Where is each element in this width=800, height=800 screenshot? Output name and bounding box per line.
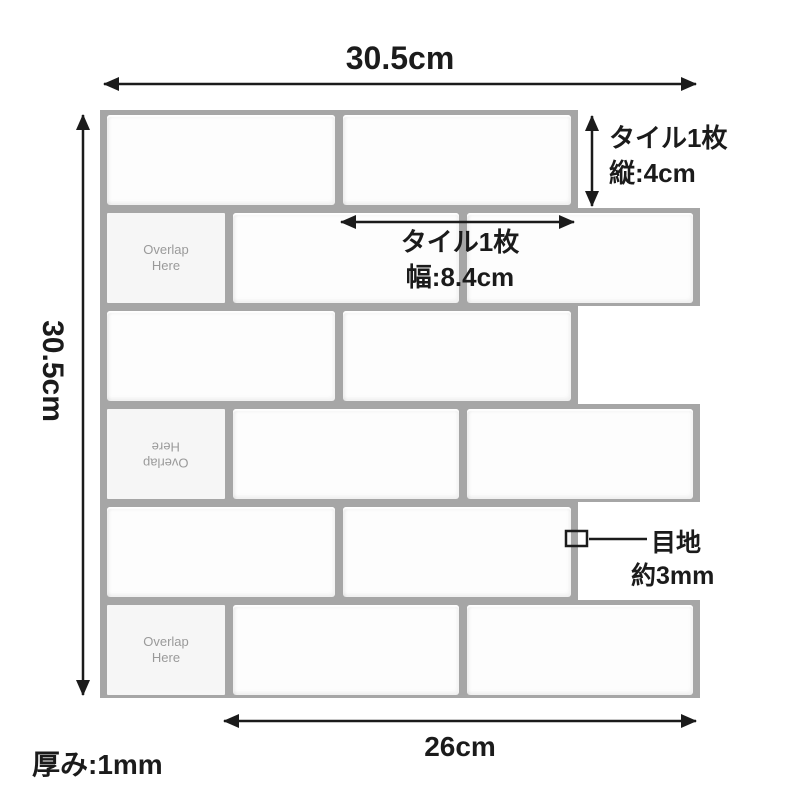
overlap-label-line1: Overlap xyxy=(143,454,189,470)
overlap-tile: OverlapHere xyxy=(107,409,225,499)
tile-row: OverlapHere xyxy=(100,404,700,502)
tile xyxy=(233,409,459,499)
tile xyxy=(343,115,571,205)
tile-row xyxy=(100,306,578,404)
sheet-width-label: 30.5cm xyxy=(310,40,490,77)
overlap-label-line1: Overlap xyxy=(143,242,189,258)
overlap-tile: OverlapHere xyxy=(107,213,225,303)
overlap-tile-label: OverlapHere xyxy=(143,438,189,471)
tile-row xyxy=(100,502,578,600)
tile-width-label-line1: タイル1枚 xyxy=(338,225,582,260)
overlap-tile-label: OverlapHere xyxy=(143,634,189,667)
tile-width-label: タイル1枚 幅:8.4cm xyxy=(338,225,582,295)
tile xyxy=(467,409,693,499)
overlap-label-line2: Here xyxy=(143,258,189,274)
tile-row: OverlapHere xyxy=(100,600,700,698)
joint-label: 目地 xyxy=(651,523,701,559)
tile xyxy=(107,507,335,597)
diagram-stage: OverlapHereOverlapHereOverlapHere 30.5cm… xyxy=(0,0,800,800)
overlap-tile-label: OverlapHere xyxy=(143,242,189,275)
partial-width-label: 26cm xyxy=(400,731,520,763)
tile-row xyxy=(100,110,578,208)
overlap-label-line2: Here xyxy=(143,650,189,666)
overlap-tile: OverlapHere xyxy=(107,605,225,695)
overlap-label-line1: Overlap xyxy=(143,634,189,650)
tile xyxy=(343,311,571,401)
tile-height-label-line1: タイル1枚 xyxy=(609,121,727,156)
tile xyxy=(107,311,335,401)
tile-sheet: OverlapHereOverlapHereOverlapHere xyxy=(100,110,700,698)
sheet-height-label: 30.5cm xyxy=(33,281,71,461)
overlap-label-line2: Here xyxy=(143,438,189,454)
joint-size-label: 約3mm xyxy=(631,556,714,592)
tile xyxy=(343,507,571,597)
tile-height-label: タイル1枚 縦:4cm xyxy=(609,121,727,191)
tile-height-label-line2: 縦:4cm xyxy=(609,156,727,191)
tile xyxy=(467,605,693,695)
tile xyxy=(107,115,335,205)
thickness-label: 厚み:1mm xyxy=(32,743,163,783)
tile xyxy=(233,605,459,695)
tile-width-label-line2: 幅:8.4cm xyxy=(338,260,582,295)
